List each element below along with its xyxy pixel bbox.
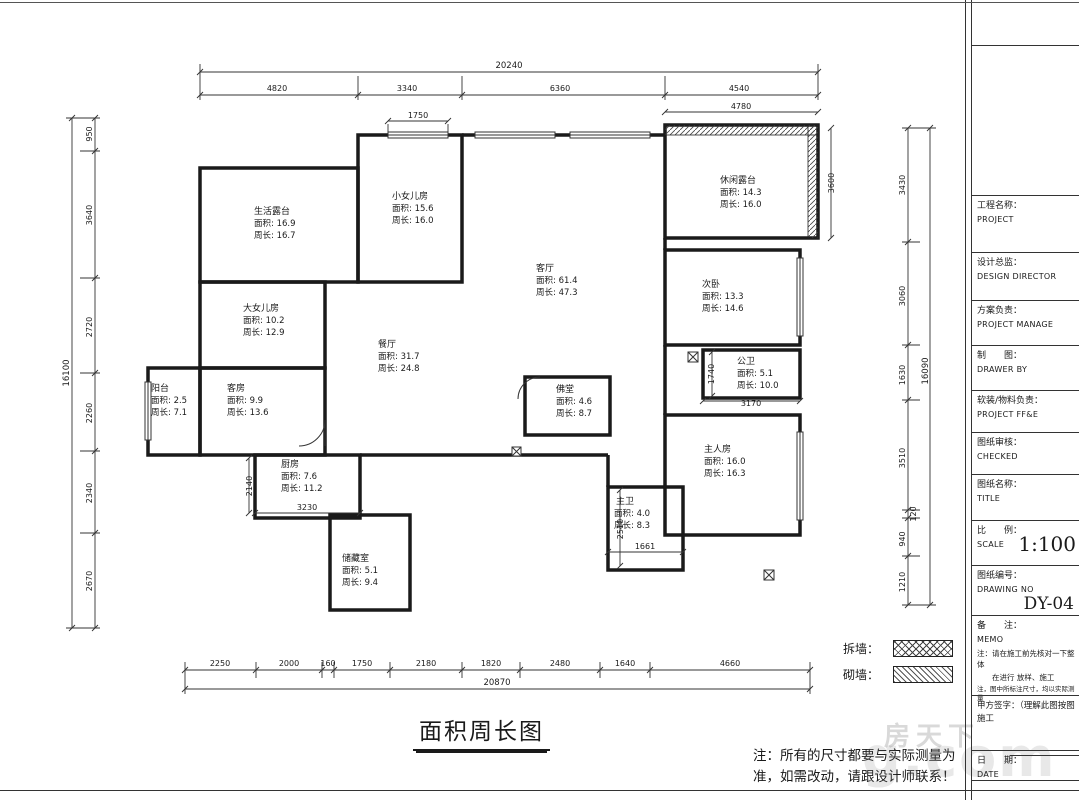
dim-top-seg: 4540 — [729, 84, 749, 93]
dim-right-seg: 940 — [898, 531, 907, 546]
tb-signature: 甲方签字：（理解此图按图施工 — [972, 695, 1079, 750]
room-label: 生活露台面积: 16.9周长: 16.7 — [254, 205, 296, 241]
svg-text:面积: 7.6: 面积: 7.6 — [281, 471, 317, 482]
svg-text:生活露台: 生活露台 — [254, 205, 290, 217]
dim-top-total: 20240 — [495, 61, 522, 71]
tb-date: 日 期： DATE — [972, 750, 1079, 780]
svg-text:周长: 12.9: 周长: 12.9 — [243, 327, 285, 338]
svg-text:面积: 15.6: 面积: 15.6 — [392, 203, 434, 214]
plan-note-line1: 注：所有的尺寸都要与实际测量为 — [753, 746, 967, 767]
svg-text:主卫: 主卫 — [616, 495, 634, 507]
room-label: 客厅面积: 61.4周长: 47.3 — [536, 262, 578, 298]
svg-text:面积: 10.2: 面积: 10.2 — [243, 315, 285, 326]
legend-demolish-swatch — [893, 640, 953, 657]
svg-text:储藏室: 储藏室 — [342, 552, 369, 564]
svg-text:休闲露台: 休闲露台 — [720, 174, 756, 186]
room-label: 厨房面积: 7.6周长: 11.2 — [281, 458, 323, 494]
svg-text:阳台: 阳台 — [151, 382, 169, 394]
dim-pubbath-v: 1740 — [707, 364, 716, 384]
svg-text:小女儿房: 小女儿房 — [392, 190, 428, 202]
legend-build-label: 砌墙： — [843, 666, 893, 683]
dim-right-seg: 1210 — [898, 572, 907, 592]
scale-value: 1:100 — [1018, 529, 1076, 559]
room-label: 休闲露台面积: 14.3周长: 16.0 — [720, 174, 762, 210]
svg-text:面积: 16.9: 面积: 16.9 — [254, 218, 296, 229]
dim-mbath-b: 1661 — [635, 542, 655, 551]
room-label: 主人房面积: 16.0周长: 16.3 — [704, 443, 746, 479]
svg-text:面积: 9.9: 面积: 9.9 — [227, 395, 263, 406]
tb-project-manage: 方案负责： PROJECT MANAGE — [972, 300, 1079, 345]
svg-text:周长: 16.7: 周长: 16.7 — [254, 230, 296, 241]
svg-text:公卫: 公卫 — [737, 356, 755, 367]
tb-memo: 备 注： MEMO 注：请在施工前先核对一下整体 在进行 放样、施工 注，图中所… — [972, 615, 1079, 695]
sheet-bottom-border — [0, 790, 1079, 791]
tb-drawing-no: 图纸编号： DRAWING NO DY-04 — [972, 565, 1079, 615]
dim-top-seg: 3340 — [397, 84, 417, 93]
dim-left-seg: 3640 — [85, 205, 94, 225]
svg-text:次卧: 次卧 — [702, 278, 720, 290]
svg-text:餐厅: 餐厅 — [378, 338, 396, 350]
legend-demolish-label: 拆墙： — [843, 640, 893, 657]
memo-note-1: 注：请在施工前先核对一下整体 — [977, 648, 1079, 671]
legend-build-swatch — [893, 666, 953, 683]
dim-bottom-seg: 2480 — [550, 659, 570, 668]
dim-bottom-seg: 2180 — [416, 659, 436, 668]
svg-text:周长: 8.7: 周长: 8.7 — [556, 408, 592, 419]
svg-text:周长: 11.2: 周长: 11.2 — [281, 483, 323, 494]
room-label: 餐厅面积: 31.7周长: 24.8 — [378, 338, 420, 374]
dim-bottom-seg: 160 — [320, 659, 335, 668]
tb-scale: 比 例： SCALE 1:100 — [972, 520, 1079, 565]
dim-bottom-seg: 1640 — [615, 659, 635, 668]
dim-bottom-seg: 2250 — [210, 659, 230, 668]
svg-text:周长: 14.6: 周长: 14.6 — [702, 303, 744, 314]
sheet-top-border — [0, 2, 1079, 3]
floor-plan-canvas: 20240 4820 3340 6360 4540 1750 4780 2250… — [0, 0, 965, 800]
dim-terrace-top: 4780 — [731, 102, 751, 111]
svg-text:面积: 31.7: 面积: 31.7 — [378, 351, 420, 362]
dim-bottom-seg: 4660 — [720, 659, 740, 668]
svg-text:主人房: 主人房 — [704, 443, 731, 455]
svg-text:周长: 16.0: 周长: 16.0 — [392, 215, 434, 226]
dimension-lines — [66, 64, 936, 694]
dim-left-seg: 2260 — [85, 403, 94, 423]
dim-pubbath-b: 3170 — [741, 399, 761, 408]
tb-project: 工程名称： PROJECT — [972, 195, 1079, 252]
title-block: 工程名称： PROJECT 设计总监： DESIGN DIRECTOR 方案负责… — [965, 0, 1079, 800]
svg-text:周长: 13.6: 周长: 13.6 — [227, 407, 269, 418]
legend: 拆墙： 砌墙： — [843, 638, 953, 690]
svg-text:周长: 16.0: 周长: 16.0 — [720, 199, 762, 210]
date-signature-line — [1010, 755, 1079, 756]
svg-text:周长: 47.3: 周长: 47.3 — [536, 287, 578, 298]
dim-kitchen-b: 3230 — [297, 503, 317, 512]
svg-text:面积: 4.6: 面积: 4.6 — [556, 396, 592, 407]
dim-bottom-seg: 1820 — [481, 659, 501, 668]
svg-text:面积: 5.1: 面积: 5.1 — [342, 565, 378, 576]
tb-drawer: 制 图： DRAWER BY — [972, 345, 1079, 390]
room-label: 大女儿房面积: 10.2周长: 12.9 — [243, 302, 285, 338]
room-label: 佛堂面积: 4.6周长: 8.7 — [556, 383, 592, 419]
dim-left-seg: 2720 — [85, 317, 94, 337]
plan-note-line2: 准，如需改动，请跟设计师联系！ — [753, 767, 967, 788]
dim-left-total: 16100 — [62, 359, 72, 386]
svg-text:周长: 16.3: 周长: 16.3 — [704, 468, 746, 479]
dim-right-seg: 3430 — [898, 175, 907, 195]
svg-text:周长: 10.0: 周长: 10.0 — [737, 380, 779, 391]
dim-right-seg: 1630 — [898, 365, 907, 385]
svg-text:面积: 16.0: 面积: 16.0 — [704, 456, 746, 467]
tb-divider — [972, 780, 1079, 781]
dim-left-seg: 2670 — [85, 571, 94, 591]
svg-text:面积: 2.5: 面积: 2.5 — [151, 395, 187, 406]
svg-text:客厅: 客厅 — [536, 262, 554, 274]
room-label: 主卫面积: 4.0周长: 8.3 — [614, 495, 650, 531]
svg-text:大女儿房: 大女儿房 — [243, 302, 279, 314]
dim-bottom-seg: 2000 — [279, 659, 299, 668]
room-label: 公卫面积: 5.1周长: 10.0 — [737, 356, 779, 391]
tb-design-director: 设计总监： DESIGN DIRECTOR — [972, 252, 1079, 300]
dim-top-seg: 4820 — [267, 84, 287, 93]
room-label: 阳台面积: 2.5周长: 7.1 — [151, 382, 187, 418]
svg-text:面积: 13.3: 面积: 13.3 — [702, 291, 744, 302]
walls — [148, 125, 818, 610]
dim-terrace-right: 3600 — [827, 173, 836, 193]
svg-text:厨房: 厨房 — [281, 458, 299, 470]
room-label: 客房面积: 9.9周长: 13.6 — [227, 382, 269, 418]
dim-bottom-seg: 1750 — [352, 659, 372, 668]
dim-left-seg: 950 — [85, 126, 94, 141]
svg-text:周长: 7.1: 周长: 7.1 — [151, 407, 187, 418]
plan-title: 面积周长图 — [413, 712, 550, 751]
svg-text:面积: 14.3: 面积: 14.3 — [720, 187, 762, 198]
dim-bottom-total: 20870 — [483, 678, 510, 688]
dim-right-seg: 3510 — [898, 448, 907, 468]
svg-text:佛堂: 佛堂 — [556, 383, 574, 395]
plan-note: 注：所有的尺寸都要与实际测量为 准，如需改动，请跟设计师联系！ — [753, 746, 967, 788]
tb-checked: 图纸审核： CHECKED — [972, 432, 1079, 474]
tb-divider — [972, 45, 1079, 46]
dim-right-seg: 120 — [909, 506, 918, 521]
dim-girl-window: 1750 — [408, 111, 428, 120]
room-label: 储藏室面积: 5.1周长: 9.4 — [342, 552, 378, 588]
room-label: 小女儿房面积: 15.6周长: 16.0 — [392, 190, 434, 226]
drawing-no-value: DY-04 — [1024, 592, 1074, 618]
dim-right-total: 16090 — [921, 357, 931, 384]
dim-kitchen-v: 2140 — [245, 476, 254, 496]
svg-text:周长: 24.8: 周长: 24.8 — [378, 363, 420, 374]
tb-ffe: 软装/物料负责： PROJECT FF&E — [972, 390, 1079, 432]
dim-top-seg: 6360 — [550, 84, 570, 93]
drawing-sheet: 20240 4820 3340 6360 4540 1750 4780 2250… — [0, 0, 1079, 800]
svg-text:面积: 4.0: 面积: 4.0 — [614, 508, 650, 519]
svg-text:面积: 61.4: 面积: 61.4 — [536, 275, 578, 286]
memo-note-2: 在进行 放样、施工 — [977, 672, 1079, 683]
dim-right-seg: 3060 — [898, 286, 907, 306]
door-swings — [299, 377, 540, 446]
dim-left-seg: 2340 — [85, 483, 94, 503]
tb-title: 图纸名称： TITLE — [972, 474, 1079, 520]
svg-text:周长: 8.3: 周长: 8.3 — [614, 520, 650, 531]
room-label: 次卧面积: 13.3周长: 14.6 — [702, 278, 744, 314]
svg-text:面积: 5.1: 面积: 5.1 — [737, 368, 773, 379]
svg-text:周长: 9.4: 周长: 9.4 — [342, 577, 378, 588]
svg-text:客房: 客房 — [227, 382, 245, 394]
